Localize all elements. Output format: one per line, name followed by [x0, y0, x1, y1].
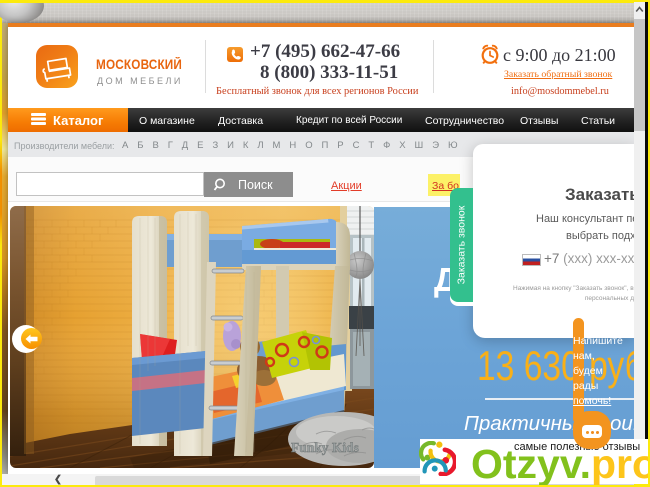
svg-text:Funky Kids: Funky Kids [291, 440, 359, 455]
